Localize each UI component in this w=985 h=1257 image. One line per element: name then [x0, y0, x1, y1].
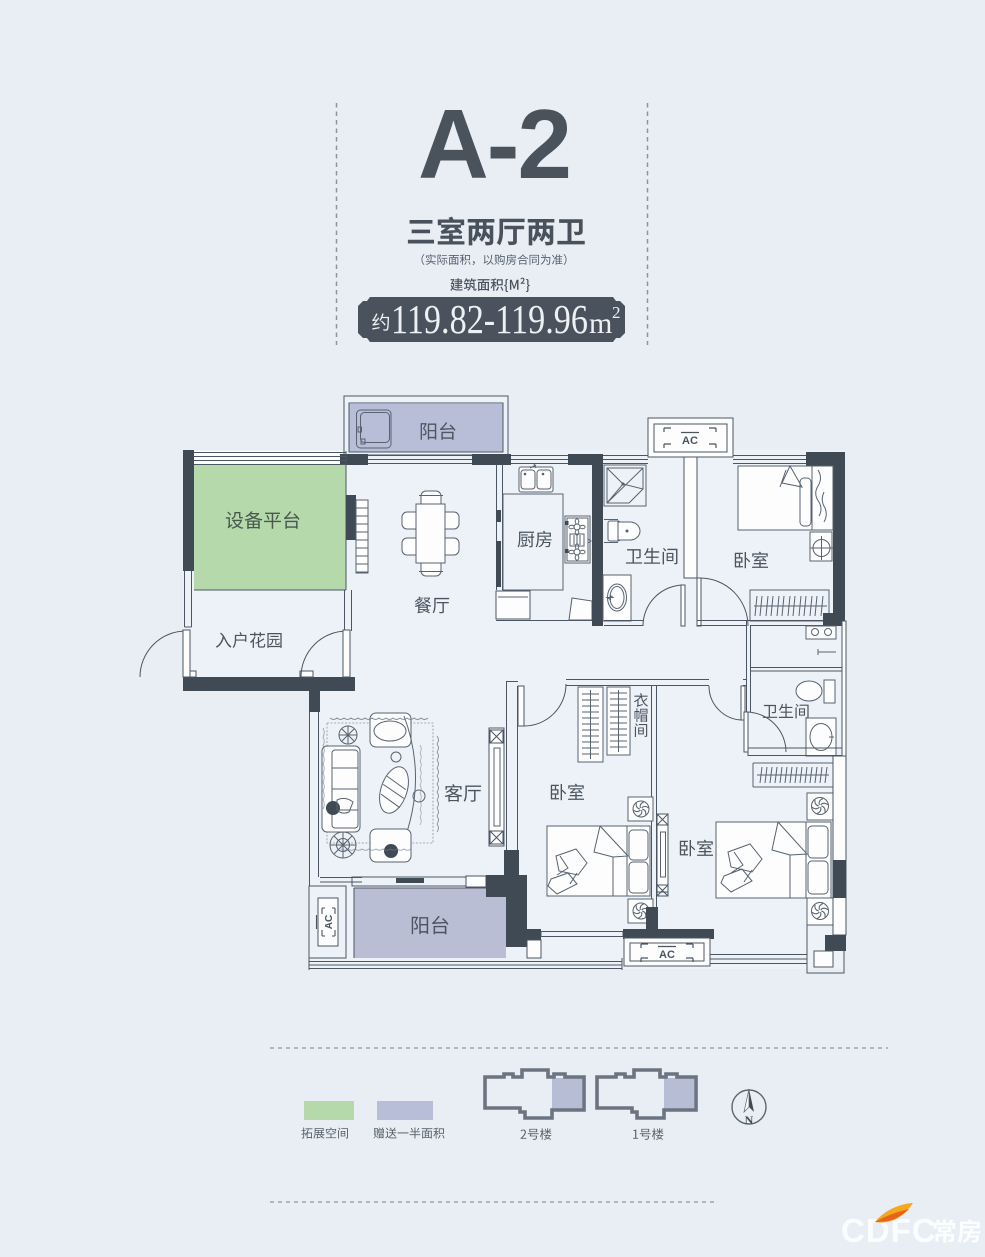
svg-text:119.82-119.96: 119.82-119.96 [391, 296, 588, 342]
svg-text:AC: AC [324, 915, 335, 929]
svg-text:AC: AC [659, 949, 675, 961]
svg-text:A-2: A-2 [418, 89, 570, 199]
svg-text:m: m [589, 307, 612, 340]
svg-text:2: 2 [612, 303, 621, 322]
svg-text:N: N [745, 1113, 754, 1127]
svg-text:AC: AC [682, 435, 698, 447]
